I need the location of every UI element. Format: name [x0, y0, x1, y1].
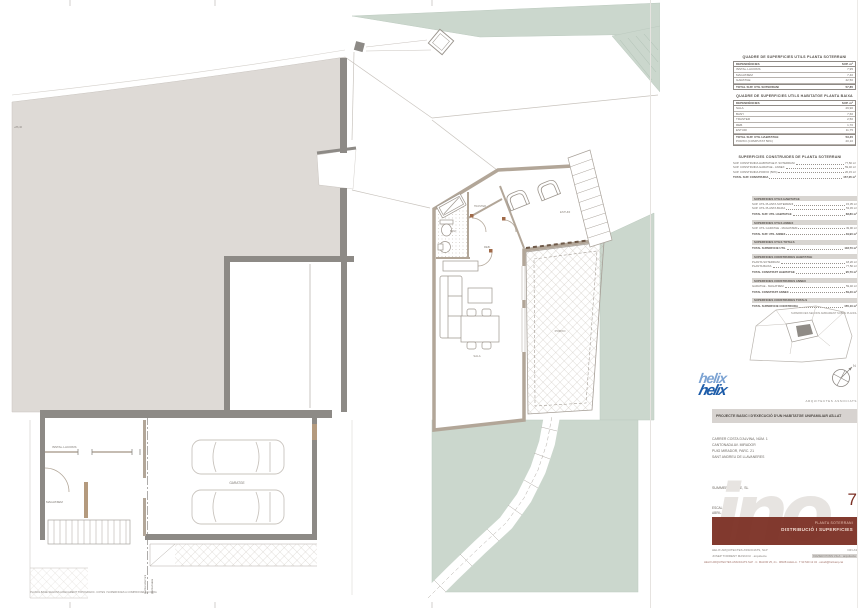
sofa	[440, 276, 462, 338]
sheet-fold-line	[650, 0, 651, 608]
key-plan	[742, 302, 858, 364]
drawing-sheet: +86,40	[0, 0, 860, 608]
leader-line: SUP. UTIL GARATGE - MAGATZEM49,90 m²	[752, 226, 857, 230]
level-annotation: +86,40	[14, 125, 23, 129]
leader-total-line: TOTAL CONSTRUIT HABITATGE95,70 m²	[752, 270, 857, 274]
table-habitatge-title: QUADRE DE SUPERFICIES UTILS HABITATGE PL…	[733, 94, 856, 98]
coffee-table	[468, 288, 492, 303]
room-label-garatge: GARATGE	[229, 481, 244, 485]
project-address: CARRER COSTA D'ALVINA, NÚM. 1 CANTONADA …	[712, 437, 768, 461]
summary-block-title: SUPERFICIES CONSTRUIDES HABITATGE	[752, 254, 857, 259]
firm-row: HELIX ARQUITECTES ASSOCIATS, SLP DIN A3	[712, 548, 857, 552]
room-label-installacions: INSTAL·LACIONS	[52, 445, 76, 449]
format-line: DIN A3	[847, 548, 857, 552]
north-compass: N	[824, 360, 858, 394]
leader-total-line: TOTAL SUP. UTIL HABITATGE68,80 m²	[752, 212, 857, 216]
north-label: N	[853, 363, 856, 368]
earth-mass: +86,40	[12, 57, 356, 418]
leader-line: GARATGE - MAGATZEM59,40 m²	[752, 284, 857, 288]
garage-area: INSTAL·LACIONS MAGATZEM GARATGE	[30, 418, 317, 598]
leader-total-line: TOTAL SUP. UTIL ANNEX49,90 m²	[752, 232, 857, 236]
firm-tagline: ARQUITECTES ASSOCIATS	[752, 399, 857, 403]
sheet-title: DISTRIBUCIÓ I SUPERFICIES	[712, 527, 853, 532]
titleblock-watermark: ino	[714, 468, 857, 560]
key-plan-building	[796, 324, 813, 337]
leader-line: PLANTA BAIXA77,50 m²	[752, 264, 857, 268]
architect-right: XAVIER PONS VILA · arquitecte	[812, 554, 857, 558]
room-label-sala: SALA	[473, 354, 480, 358]
leader-line: SUP. CONSTRUIDA PORXO (50%)20,15 m²	[733, 170, 856, 174]
room-label-magatzem: MAGATZEM	[46, 500, 63, 504]
col-header: DEPENDÈNCIES	[736, 102, 760, 105]
firm-logo: helix helix	[699, 373, 763, 397]
sheet-margin-line	[857, 0, 858, 608]
sheet-subtitle: PLANTA SOTERRANI	[712, 521, 853, 525]
summary-block-title: SUPERFICIES CONSTRUIDES ANNEX	[752, 278, 857, 283]
floor-plan-drawing: +86,40	[0, 0, 660, 608]
boundary-marker	[354, 41, 365, 52]
room-label-porxo: PORXO	[555, 329, 567, 333]
summary-block: SUPERFICIES CONSTRUIDES ANNEX GARATGE - …	[752, 278, 857, 294]
scale-date: ESCALA 1/50 ABRIL 2024	[712, 506, 732, 517]
summary-block: SUPERFICIES UTILS TOTALS TOTAL SUPERFICI…	[752, 240, 857, 251]
architect-left: JOSEP TORRENT MASNOU · arquitecte	[712, 554, 767, 558]
built-areas-title: SUPERFICIES CONSTRUIDES DE PLANTA SOTERR…	[723, 155, 857, 159]
driveway	[30, 544, 317, 598]
col-header: SUP. m²	[842, 102, 853, 105]
summary-block-title: SUPERFICIES UTILS ANNEX	[752, 220, 857, 225]
summary-block: SUPERFICIES UTILS HABITATGE SUP. UTIL PL…	[752, 196, 857, 216]
plan-footnote: PLANOL BASE SEGONS AIXECAMENT TOPOGRAFIC…	[30, 590, 157, 594]
built-areas-block: SUP. CONSTRUIDA HABITATGE P. SOTERRANI77…	[733, 161, 856, 180]
client-name: SUMMER OFFICE, SL	[712, 486, 749, 490]
staircase	[48, 520, 130, 544]
car-2	[192, 490, 284, 524]
leader-total-line: TOTAL CONSTRUIT ANNEX59,40 m²	[752, 290, 857, 294]
table-row: PORXO (COMPUTAT 50%)20,10	[734, 139, 855, 144]
room-label-traster: TRASTER	[474, 204, 486, 208]
room-label-bany: BANY	[450, 230, 457, 233]
sheet-title-band: PLANTA SOTERRANI DISTRIBUCIÓ I SUPERFICI…	[712, 517, 857, 545]
car-1	[192, 440, 284, 474]
firm-line: HELIX ARQUITECTES ASSOCIATS, SLP	[712, 548, 768, 552]
titleblock-fine-print: HELIX ARQUITECTES ASSOCIATS SLP · C. MAJ…	[704, 561, 857, 564]
architects-row: JOSEP TORRENT MASNOU · arquitecte XAVIER…	[712, 554, 857, 558]
sideboard	[443, 261, 478, 271]
storage-door-arc	[45, 468, 69, 492]
col-header: DEPENDÈNCIES	[736, 63, 760, 66]
leader-total-line: TOTAL SUP. CONSTRUIDA157,05 m²	[733, 175, 856, 179]
table-soterrani-title: QUADRE DE SUPERFICIES UTILS PLANTA SOTER…	[733, 55, 856, 59]
project-title: PROJECTE BASIC I D'EXECUCIÓ D'UN HABITAT…	[712, 409, 857, 423]
leader-line: SUP. UTIL PLANTA BAIXA53,45 m²	[752, 206, 857, 210]
table-total-row: TOTAL SUP. UTIL SOTERRANI57,85	[734, 84, 855, 89]
summary-block-title: SUPERFICIES UTILS TOTALS	[752, 240, 857, 245]
table-habitatge: DEPENDÈNCIESSUP. m² SALA29,90 BANY7,60 T…	[733, 100, 856, 146]
garage-door	[312, 424, 317, 440]
col-header: SUP. m²	[842, 63, 853, 66]
terrace: PORXO	[526, 242, 604, 414]
section-line: planta soterrani planta baixa	[143, 416, 352, 596]
room-label-reb: REB.	[484, 245, 491, 249]
room-label-estudi: ESTUDI	[560, 210, 570, 214]
table-soterrani: DEPENDÈNCIESSUP. m² INSTAL·LACIONS7,95 M…	[733, 61, 856, 90]
summary-blocks: SUPERFICIES UTILS HABITATGE SUP. UTIL PL…	[752, 196, 857, 315]
leader-total-line: TOTAL SUPERFICIE UTIL118,70 m²	[752, 246, 857, 250]
summary-block: SUPERFICIES UTILS ANNEX SUP. UTIL GARATG…	[752, 220, 857, 236]
sheet-number: 7	[833, 490, 857, 510]
summary-block-title: SUPERFICIES UTILS HABITATGE	[752, 196, 857, 201]
summary-block: SUPERFICIES CONSTRUIDES HABITATGE PLANTA…	[752, 254, 857, 274]
address-line: SANT ANDREU DE LLAVANERES	[712, 455, 768, 461]
bathroom: BANY	[436, 192, 470, 258]
logo-text-bottom: helix	[697, 384, 764, 397]
